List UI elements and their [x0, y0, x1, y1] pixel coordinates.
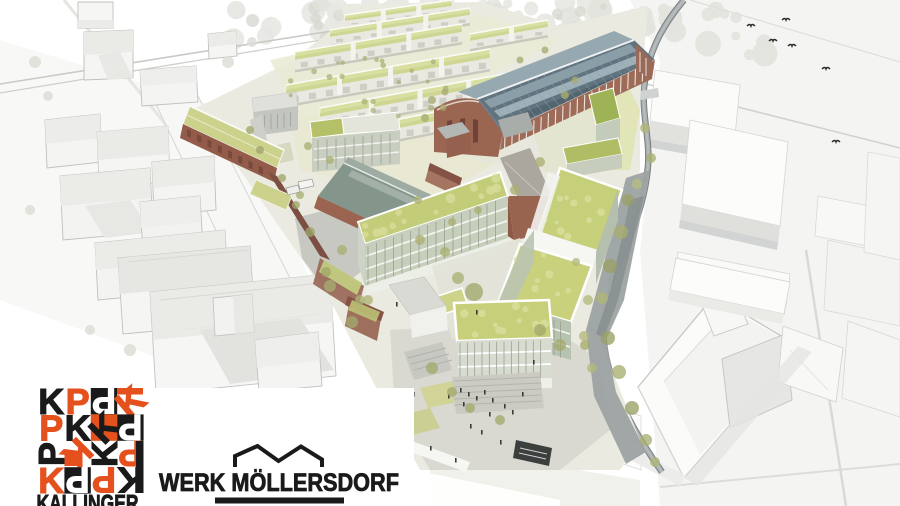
svg-text:KALLINGER: KALLINGER	[37, 491, 139, 506]
svg-text:WERK MÖLLERSDORF: WERK MÖLLERSDORF	[159, 470, 399, 497]
